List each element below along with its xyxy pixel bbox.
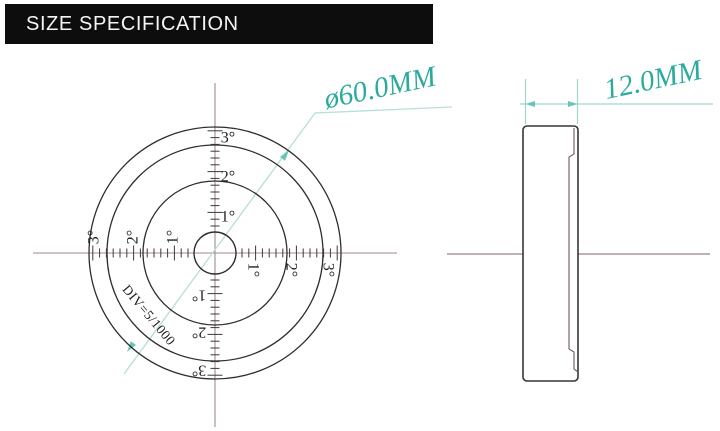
- degree-label: 1°: [221, 209, 235, 226]
- degree-labels-top: 1° 2° 3°: [221, 130, 235, 226]
- degree-labels-left: 1° 2° 3°: [86, 230, 182, 244]
- degree-labels-right: 1° 2° 3°: [245, 263, 337, 277]
- dimension-arrow-left-icon: [526, 101, 536, 107]
- size-specification-page: SIZE SPECIFICATION: [0, 0, 720, 431]
- degree-label: 1°: [245, 263, 262, 277]
- degree-label: 3°: [86, 230, 103, 244]
- degree-label: 2°: [283, 263, 300, 277]
- side-profile-body: [523, 126, 578, 381]
- degree-label: 2°: [221, 169, 235, 186]
- degree-label: 1°: [192, 287, 206, 304]
- front-view: 1° 2° 3° 1° 2° 3° 1° 2° 3° 1° 2° 3°: [33, 60, 452, 427]
- degree-label: 2°: [192, 324, 206, 341]
- thickness-dimension-label: 12.0MM: [601, 54, 706, 106]
- degree-label: 3°: [221, 130, 235, 147]
- diameter-dimension-label: ø60.0MM: [320, 60, 441, 116]
- dimension-arrow-right-icon: [568, 101, 578, 107]
- technical-drawing: 1° 2° 3° 1° 2° 3° 1° 2° 3° 1° 2° 3°: [0, 0, 720, 431]
- degree-label: 1°: [165, 230, 182, 244]
- degree-label: 3°: [320, 263, 337, 277]
- degree-label: 2°: [125, 230, 142, 244]
- degree-labels-bottom: 1° 2° 3°: [192, 287, 206, 379]
- side-view: 12.0MM: [447, 54, 713, 381]
- degree-label: 3°: [192, 362, 206, 379]
